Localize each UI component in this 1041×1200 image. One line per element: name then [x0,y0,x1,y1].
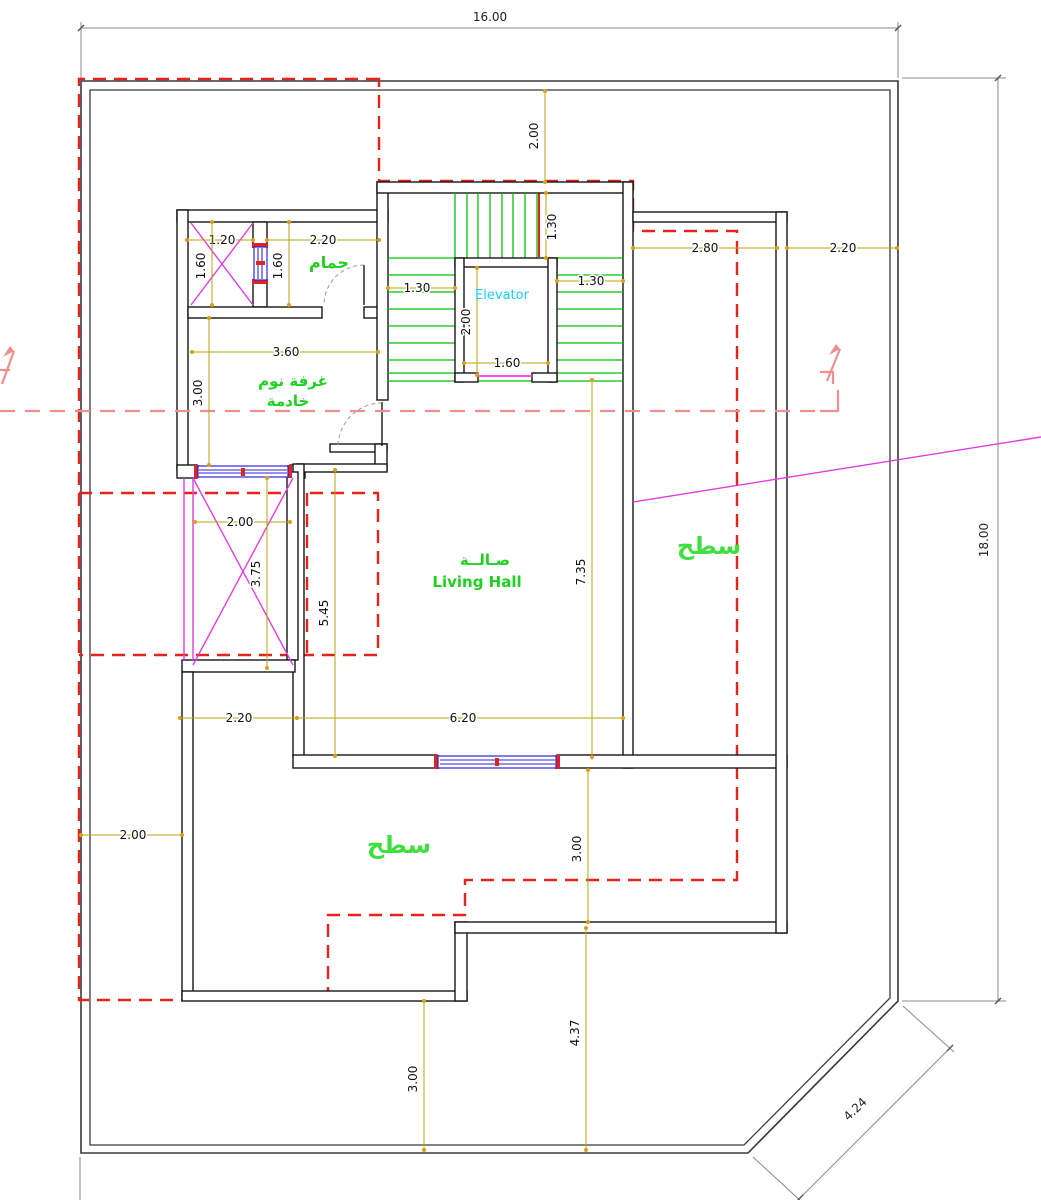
wall-topleft-top [177,210,388,222]
wall-terrace-bottom-right [455,922,787,933]
wall-hall-top [297,464,387,472]
dim-terrace-width: 2.20 [226,711,253,725]
floor-plan-svg: 16.00 18.00 4.24 [0,0,1041,1200]
wall-terrace-bottom-left [182,991,467,1001]
room-label-elevator: Elevator [475,288,530,303]
dim-shaft-height: 1.60 [194,253,208,280]
dim-hall-right-height: 7.35 [574,559,588,586]
dim-maid-height: 3.00 [191,380,205,407]
room-label-roof-bottom: سطح [367,831,431,859]
wall-terrace-step [455,922,467,1001]
wall-court-bottom [182,660,295,672]
room-label-maid-line1: غرفة نوم [258,372,328,390]
dim-hall-left-height: 5.45 [317,600,331,627]
wall-stair-hall-right [623,182,633,768]
room-label-maid-line2: خادمة [267,392,310,410]
dim-bath-width: 2.20 [310,233,337,247]
dim-rear-right-setback: 4.37 [568,1020,582,1047]
room-label-bathroom: حمام [309,253,349,272]
room-label-hall-arabic: صـالــة [460,551,510,569]
floor-plan-page: 16.00 18.00 4.24 [0,0,1041,1200]
door-swing-maid [338,403,382,447]
dim-elevator-width: 1.60 [494,356,521,370]
shaft-cross-marks [184,223,1041,665]
wall-stair-top [377,182,633,193]
room-label-hall-english: Living Hall [432,573,521,591]
dim-top-setback: 2.00 [527,123,541,150]
dim-stair-flight-right: 1.30 [578,274,605,288]
dim-right-offset-inner: 2.80 [692,241,719,255]
door-arcs [324,265,382,447]
wall-court-right [287,472,298,660]
wall-shaft-right-lower [253,281,267,307]
dim-rear-setback: 3.00 [406,1066,420,1093]
dim-left-setback: 2.00 [120,828,147,842]
dim-court-width: 2.00 [227,515,254,529]
wall-hall-bottom-left [293,755,437,768]
wall-stair-left [377,182,388,400]
wall-topleft-left [177,210,188,470]
dim-terrace-depth: 3.00 [570,836,584,863]
dim-stair-flight-left: 1.30 [404,281,431,295]
wall-bath-partition-stub [364,307,378,318]
utility-diagonal-line [633,437,1041,502]
dim-plot-width: 16.00 [473,10,507,24]
dim-plot-depth: 18.00 [977,523,991,557]
dim-maid-width: 3.60 [273,345,300,359]
dim-shaft-width: 1.20 [209,233,236,247]
dim-elevator-depth: 2.00 [459,309,473,336]
wall-terrace-left [182,672,193,996]
dim-stair-flight-top: 1.30 [545,214,559,241]
building-walls [177,182,787,1001]
wall-parapet-top [633,212,787,222]
dim-chamfer: 4.24 [841,1095,870,1124]
room-label-roof-right: سطح [677,532,741,560]
dim-right-offset-outer: 2.20 [830,241,857,255]
dim-court-height: 3.75 [249,561,263,588]
dim-hall-width: 6.20 [450,711,477,725]
dim-bath-height: 1.60 [271,253,285,280]
section-cut-line [0,344,840,411]
wall-parapet-right [776,212,787,933]
wall-bath-partition [188,307,322,318]
